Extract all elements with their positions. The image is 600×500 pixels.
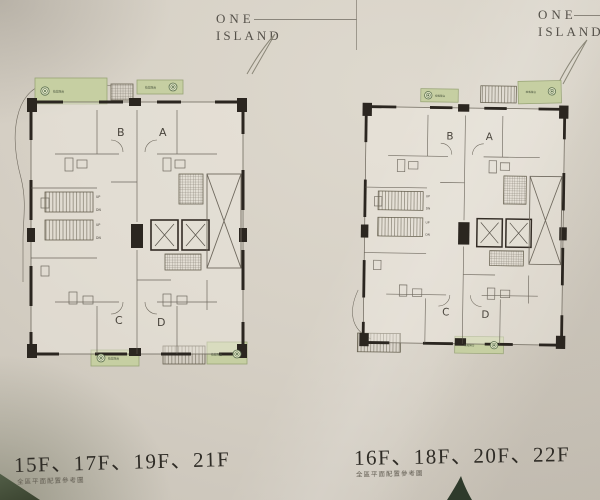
stair-dn-label: DN [425, 233, 430, 237]
unit-label-d: D [157, 316, 165, 329]
floors-label-left: 15F、17F、19F、21F [14, 443, 231, 479]
stair-dn-label: DN [96, 236, 101, 240]
stair-dn-label: DN [96, 208, 101, 212]
stair-up-label: UP [96, 195, 100, 199]
logo-rule [254, 19, 357, 20]
unit-label-c: C [115, 314, 123, 327]
unit-label-d: D [481, 309, 489, 321]
unit-label-c: C [442, 306, 449, 318]
plan-caption-right: 全區平面配置參考圖 [356, 467, 424, 478]
floor-plan-left: UP DN UP DN 植栽陽台 [10, 70, 262, 382]
balcony-label: 植栽陽台 [145, 86, 156, 90]
balcony-label: 植栽陽台 [53, 90, 64, 94]
page-fold-line [356, 0, 357, 50]
brochure-photo: ONE ISLAND ONE ISLAND [0, 0, 600, 500]
dark-leaf-icon [440, 476, 480, 500]
stair-up-label: UP [426, 194, 430, 198]
floors-label-right: 16F、18F、20F、22F [354, 438, 571, 472]
balcony-label: 植栽陽台 [464, 343, 475, 347]
balcony-label: 植栽陽台 [108, 357, 119, 361]
stair-up-label: UP [96, 223, 100, 227]
stair-up-label: UP [426, 220, 430, 224]
unit-label-a: A [486, 131, 493, 143]
floor-plan-right: UP DN UP DN 植栽陽台 植 [344, 64, 582, 383]
balcony-label: 植栽陽台 [526, 90, 537, 94]
balcony-label: 植栽陽台 [211, 353, 222, 357]
unit-label-b: B [117, 126, 125, 139]
logo-rule [574, 15, 600, 16]
stair-dn-label: DN [426, 206, 431, 210]
unit-label-a: A [159, 126, 167, 139]
unit-label-b: B [446, 131, 453, 143]
plan-caption-left: 全區平面配置參考圖 [17, 474, 85, 486]
balcony-label: 植栽陽台 [435, 94, 446, 98]
brand-logo-right: ONE ISLAND [538, 7, 600, 40]
